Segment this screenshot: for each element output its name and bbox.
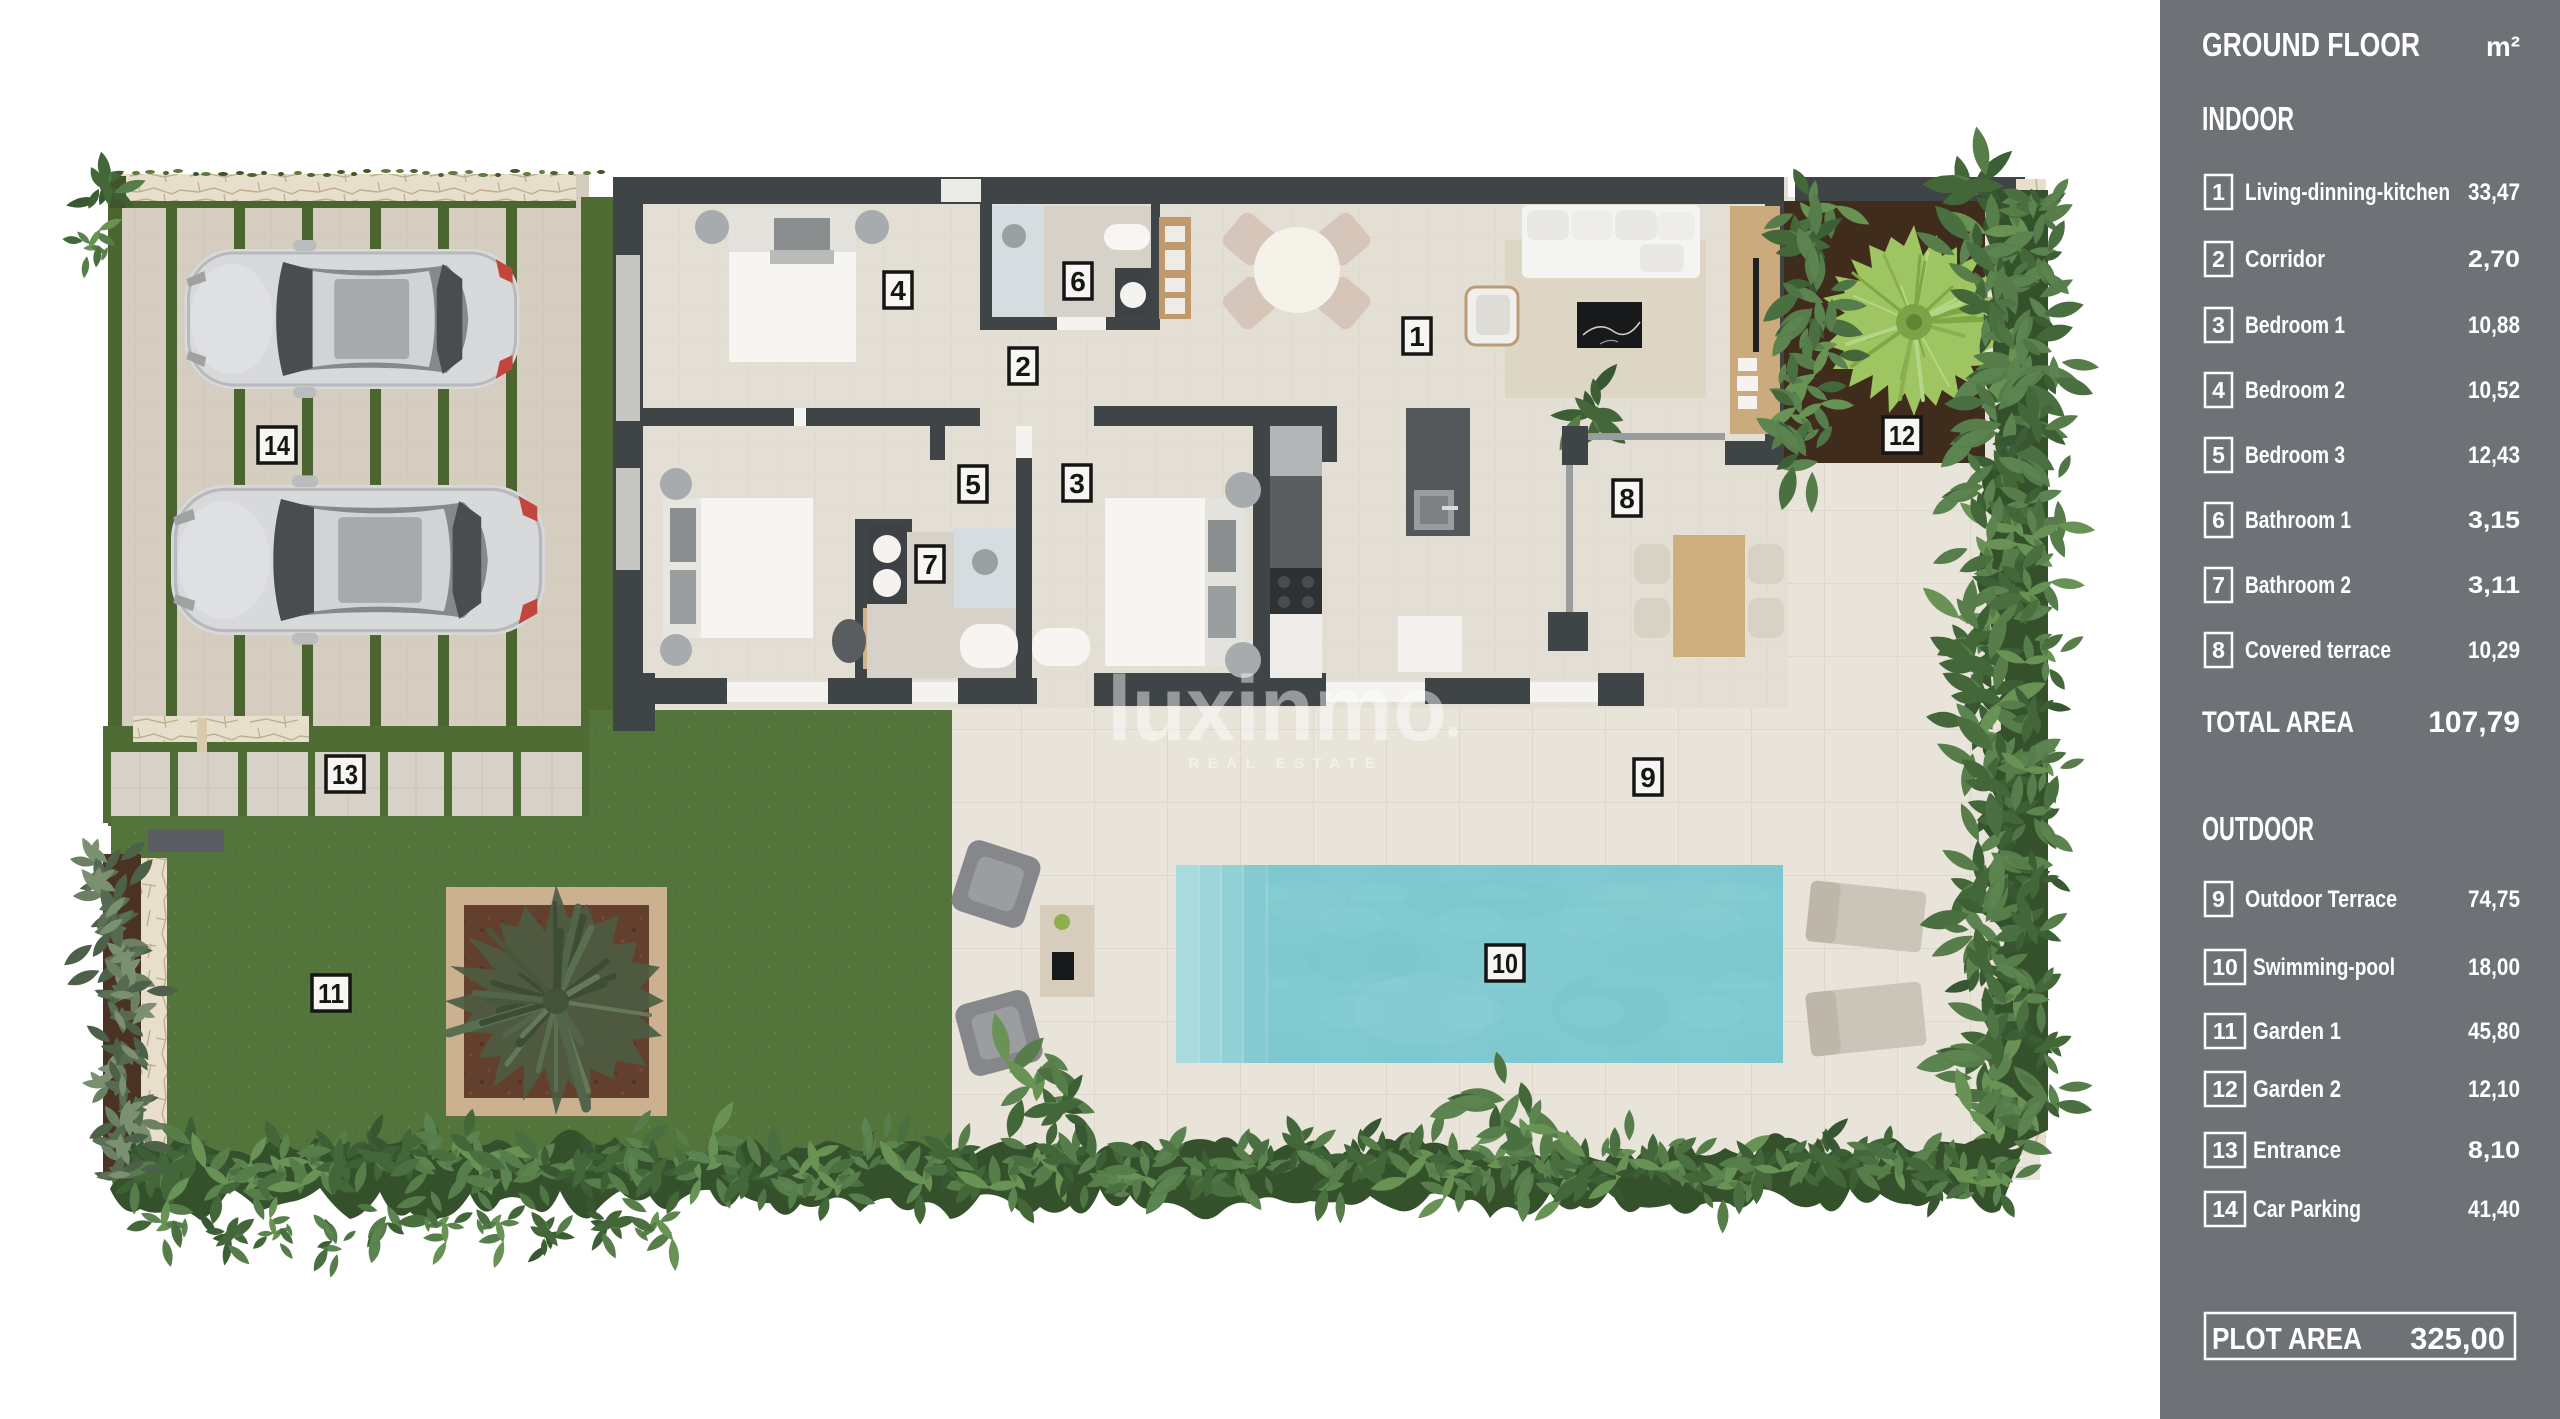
- svg-text:5: 5: [965, 469, 981, 500]
- svg-text:Bedroom 3: Bedroom 3: [2245, 442, 2345, 469]
- svg-text:12: 12: [2212, 1076, 2238, 1102]
- svg-text:3: 3: [1069, 468, 1085, 499]
- svg-text:1: 1: [1409, 321, 1425, 352]
- svg-text:74,75: 74,75: [2468, 886, 2520, 913]
- svg-text:Bedroom 1: Bedroom 1: [2245, 312, 2345, 339]
- svg-text:9: 9: [2212, 886, 2225, 912]
- svg-text:10,88: 10,88: [2468, 312, 2520, 339]
- svg-text:14: 14: [264, 430, 290, 461]
- svg-text:1: 1: [2212, 179, 2225, 205]
- svg-text:7: 7: [2212, 572, 2225, 598]
- svg-text:INDOOR: INDOOR: [2202, 100, 2294, 137]
- svg-text:6: 6: [2212, 507, 2225, 533]
- svg-text:2: 2: [2212, 246, 2225, 272]
- svg-text:Outdoor Terrace: Outdoor Terrace: [2245, 886, 2397, 913]
- svg-text:10,29: 10,29: [2468, 637, 2520, 664]
- svg-text:107,79: 107,79: [2428, 706, 2520, 739]
- svg-text:11: 11: [2213, 1018, 2238, 1044]
- svg-text:2,70: 2,70: [2468, 246, 2520, 273]
- svg-text:4: 4: [890, 275, 906, 306]
- svg-text:3: 3: [2212, 312, 2225, 338]
- svg-text:Entrance: Entrance: [2253, 1137, 2341, 1164]
- svg-text:TOTAL AREA: TOTAL AREA: [2202, 706, 2354, 739]
- svg-text:Covered terrace: Covered terrace: [2245, 637, 2391, 664]
- svg-text:Bathroom 1: Bathroom 1: [2245, 507, 2351, 534]
- svg-text:Corridor: Corridor: [2245, 246, 2325, 273]
- svg-text:luxinmo: luxinmo: [1107, 658, 1447, 760]
- svg-text:13: 13: [332, 759, 358, 790]
- svg-text:REAL ESTATE: REAL ESTATE: [1188, 755, 1383, 772]
- svg-text:7: 7: [922, 549, 938, 580]
- svg-text:2: 2: [1015, 351, 1031, 382]
- svg-text:8,10: 8,10: [2468, 1137, 2520, 1164]
- svg-text:3,15: 3,15: [2468, 507, 2520, 534]
- svg-text:Car Parking: Car Parking: [2253, 1196, 2361, 1223]
- svg-text:9: 9: [1640, 762, 1656, 793]
- svg-text:41,40: 41,40: [2468, 1196, 2520, 1223]
- svg-text:Garden 2: Garden 2: [2253, 1076, 2341, 1103]
- svg-text:10: 10: [1492, 948, 1518, 979]
- svg-text:6: 6: [1070, 266, 1086, 297]
- svg-text:8: 8: [1619, 483, 1635, 514]
- svg-text:5: 5: [2212, 442, 2225, 468]
- svg-text:33,47: 33,47: [2468, 179, 2520, 206]
- svg-text:12,43: 12,43: [2468, 442, 2520, 469]
- svg-text:GROUND FLOOR: GROUND FLOOR: [2202, 26, 2420, 63]
- svg-text:Swimming-pool: Swimming-pool: [2253, 954, 2395, 981]
- svg-text:11: 11: [318, 978, 344, 1009]
- svg-text:12,10: 12,10: [2468, 1076, 2520, 1103]
- svg-text:Bedroom 2: Bedroom 2: [2245, 377, 2345, 404]
- svg-text:45,80: 45,80: [2468, 1018, 2520, 1045]
- svg-text:OUTDOOR: OUTDOOR: [2202, 810, 2314, 847]
- svg-text:10,52: 10,52: [2468, 377, 2520, 404]
- svg-text:Garden 1: Garden 1: [2253, 1018, 2341, 1045]
- svg-text:13: 13: [2212, 1137, 2238, 1163]
- svg-text:Living-dinning-kitchen: Living-dinning-kitchen: [2245, 179, 2450, 206]
- svg-text:12: 12: [1889, 420, 1915, 451]
- svg-text:8: 8: [2212, 637, 2225, 663]
- svg-text:m²: m²: [2486, 31, 2520, 62]
- svg-text:10: 10: [2212, 954, 2238, 980]
- svg-text:PLOT AREA: PLOT AREA: [2212, 1321, 2362, 1356]
- svg-text:Bathroom 2: Bathroom 2: [2245, 572, 2351, 599]
- svg-text:4: 4: [2212, 377, 2225, 403]
- svg-text:18,00: 18,00: [2468, 954, 2520, 981]
- svg-text:14: 14: [2212, 1196, 2238, 1222]
- svg-text:3,11: 3,11: [2468, 572, 2520, 599]
- svg-text:325,00: 325,00: [2410, 1321, 2505, 1356]
